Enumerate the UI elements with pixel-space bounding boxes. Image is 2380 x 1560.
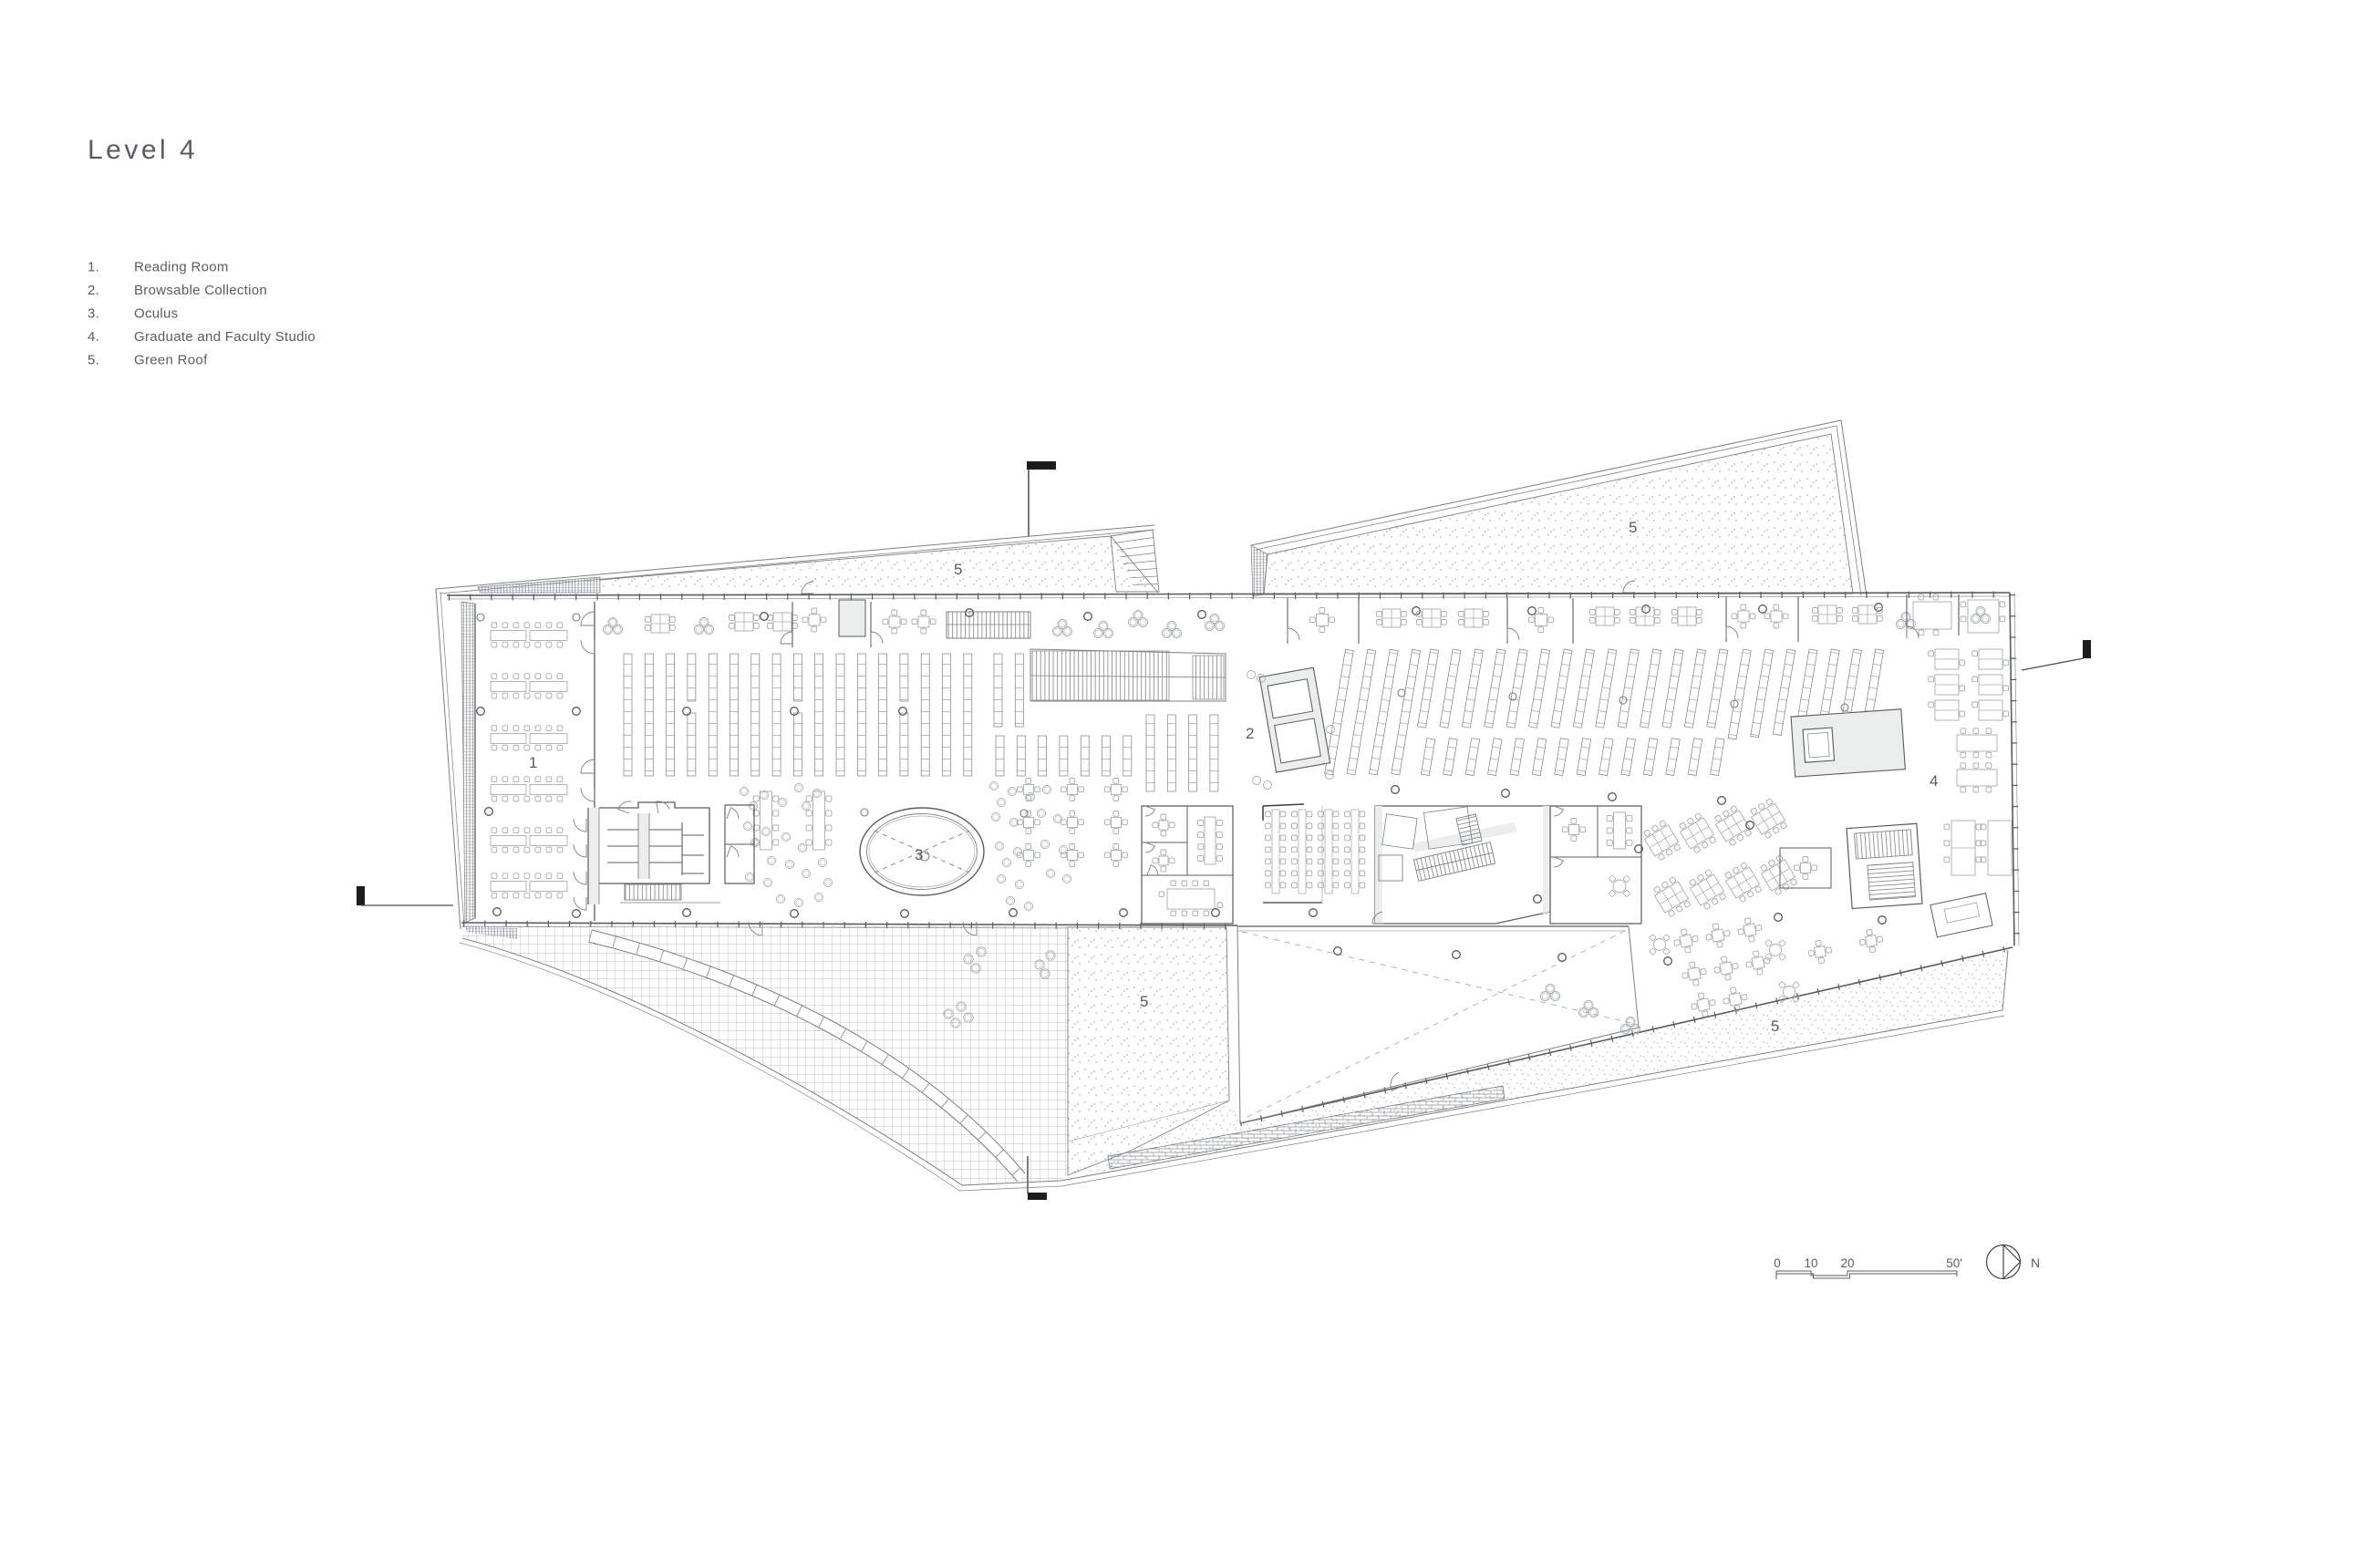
svg-text:4: 4 — [1930, 772, 1938, 790]
svg-text:2: 2 — [1246, 725, 1254, 742]
svg-text:3.: 3. — [88, 306, 99, 322]
svg-text:2.: 2. — [88, 283, 99, 298]
svg-text:N: N — [2031, 1255, 2040, 1270]
svg-text:1: 1 — [529, 754, 537, 771]
svg-text:5: 5 — [1771, 1018, 1779, 1035]
svg-text:Green Roof: Green Roof — [134, 353, 208, 368]
svg-text:0: 0 — [1774, 1256, 1781, 1270]
svg-text:Reading Room: Reading Room — [134, 260, 229, 275]
svg-text:5: 5 — [954, 561, 962, 578]
svg-text:5: 5 — [1140, 993, 1148, 1010]
svg-text:Graduate and Faculty Studio: Graduate and Faculty Studio — [134, 329, 316, 345]
svg-text:50': 50' — [1946, 1256, 1962, 1270]
svg-text:1.: 1. — [88, 260, 99, 275]
svg-text:5.: 5. — [88, 353, 99, 368]
svg-text:10: 10 — [1804, 1256, 1817, 1270]
svg-text:20: 20 — [1840, 1256, 1854, 1270]
svg-text:Oculus: Oculus — [134, 306, 179, 322]
svg-text:3: 3 — [915, 846, 923, 863]
svg-text:4.: 4. — [88, 329, 99, 345]
svg-text:Level 4: Level 4 — [88, 135, 198, 165]
svg-text:Browsable Collection: Browsable Collection — [134, 283, 267, 298]
svg-text:5: 5 — [1629, 519, 1637, 536]
